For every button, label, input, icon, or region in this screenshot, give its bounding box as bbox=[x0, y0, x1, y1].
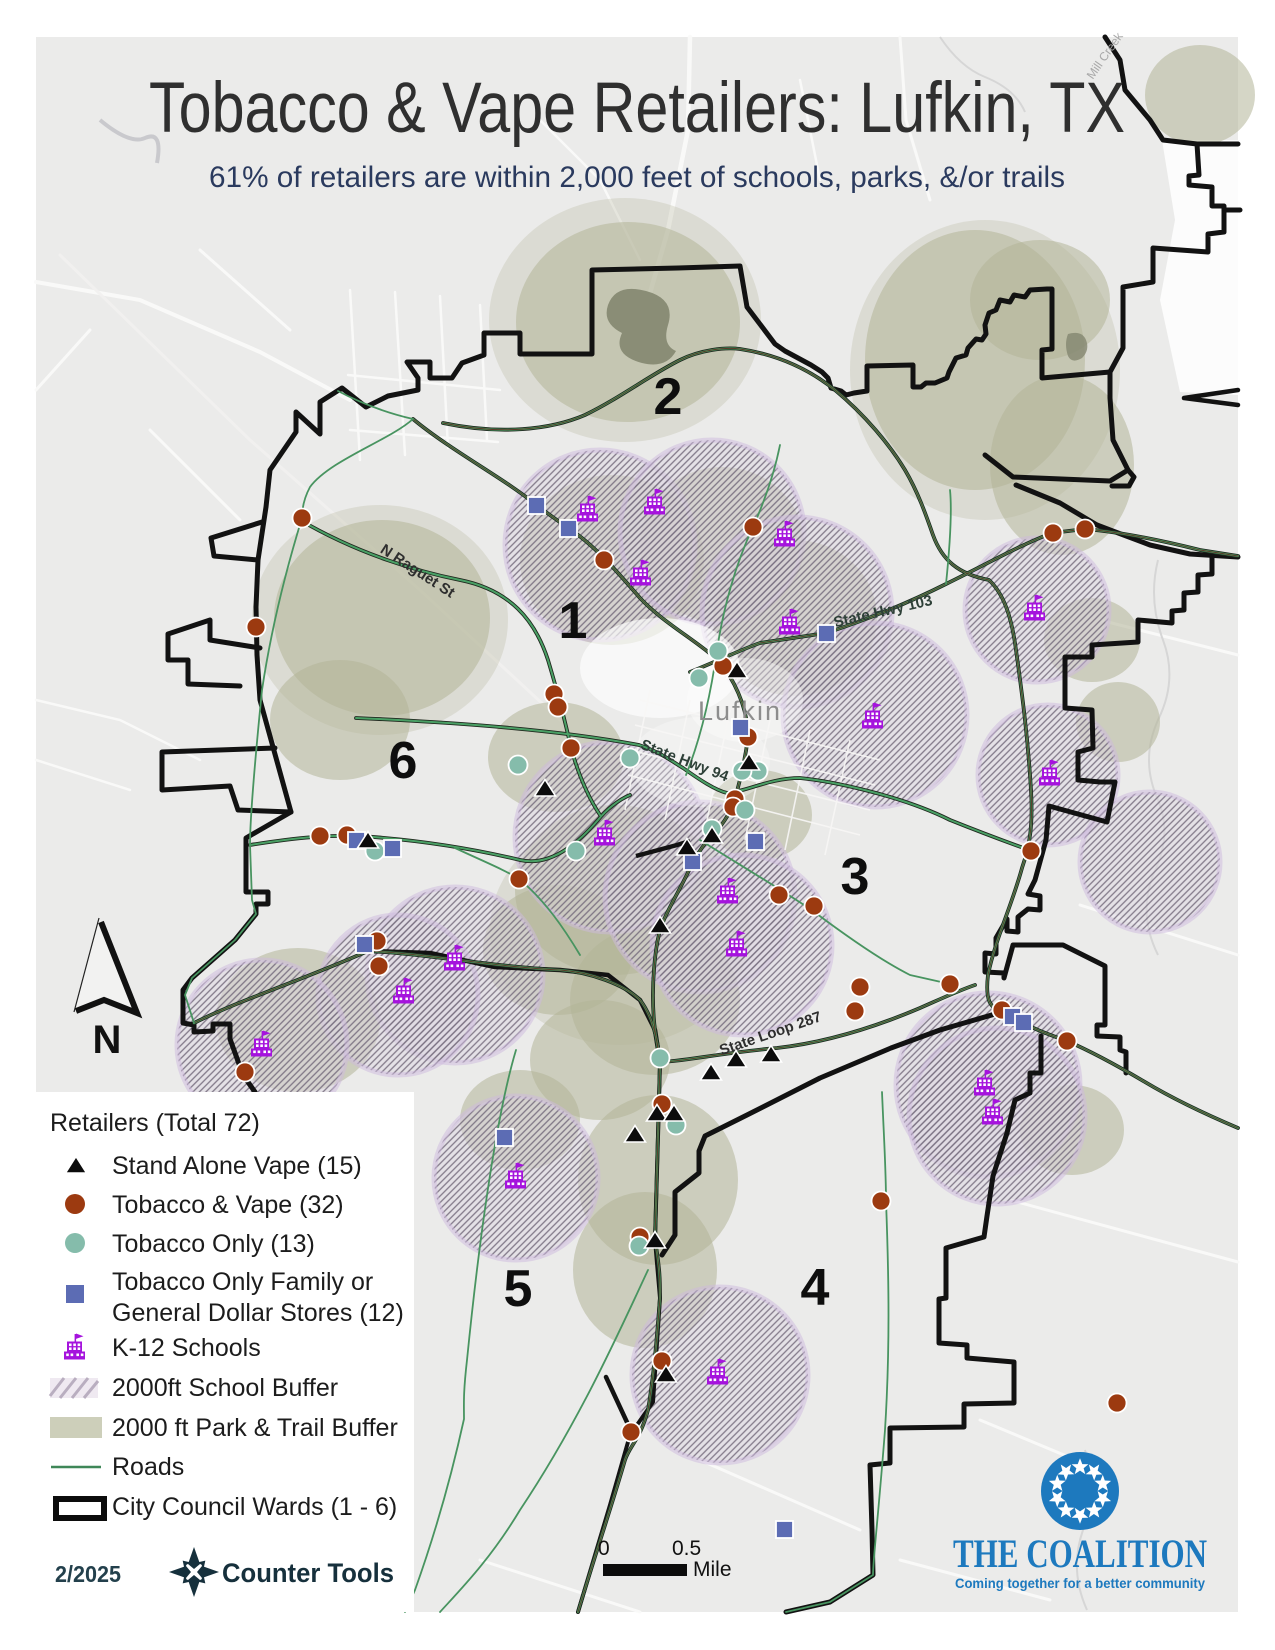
svg-text:61% of retailers are within 2,: 61% of retailers are within 2,000 feet o… bbox=[209, 161, 1065, 194]
svg-text:General Dollar Stores (12): General Dollar Stores (12) bbox=[112, 1299, 404, 1327]
svg-text:Tobacco Only (13): Tobacco Only (13) bbox=[112, 1230, 315, 1258]
svg-text:Counter Tools: Counter Tools bbox=[222, 1558, 394, 1588]
svg-text:Tobacco & Vape (32): Tobacco & Vape (32) bbox=[112, 1191, 344, 1219]
svg-text:City Council Wards (1 - 6): City Council Wards (1 - 6) bbox=[112, 1493, 397, 1521]
svg-text:0.5: 0.5 bbox=[672, 1537, 701, 1560]
svg-text:Roads: Roads bbox=[112, 1453, 184, 1481]
svg-text:4: 4 bbox=[801, 1259, 830, 1317]
svg-text:Retailers (Total 72): Retailers (Total 72) bbox=[50, 1109, 260, 1137]
svg-text:2000 ft Park & Trail Buffer: 2000 ft Park & Trail Buffer bbox=[112, 1414, 398, 1442]
svg-text:6: 6 bbox=[389, 732, 418, 790]
svg-text:Tobacco Only Family or: Tobacco Only Family or bbox=[112, 1268, 373, 1296]
svg-text:Stand Alone Vape (15): Stand Alone Vape (15) bbox=[112, 1152, 362, 1180]
svg-text:Mile: Mile bbox=[693, 1558, 732, 1581]
svg-text:THE COALITION: THE COALITION bbox=[953, 1531, 1207, 1576]
svg-text:2/2025: 2/2025 bbox=[55, 1561, 121, 1587]
svg-text:Tobacco & Vape Retailers: Lufk: Tobacco & Vape Retailers: Lufkin, TX bbox=[149, 69, 1125, 148]
svg-text:K-12 Schools: K-12 Schools bbox=[112, 1334, 261, 1362]
svg-text:3: 3 bbox=[841, 848, 870, 906]
svg-text:0: 0 bbox=[598, 1537, 610, 1560]
svg-text:1: 1 bbox=[559, 592, 588, 650]
svg-text:5: 5 bbox=[504, 1260, 533, 1318]
svg-text:2000ft School Buffer: 2000ft School Buffer bbox=[112, 1374, 338, 1402]
svg-text:2: 2 bbox=[654, 368, 683, 426]
svg-text:Coming together for a better c: Coming together for a better community bbox=[955, 1575, 1205, 1591]
svg-text:N: N bbox=[93, 1018, 122, 1062]
